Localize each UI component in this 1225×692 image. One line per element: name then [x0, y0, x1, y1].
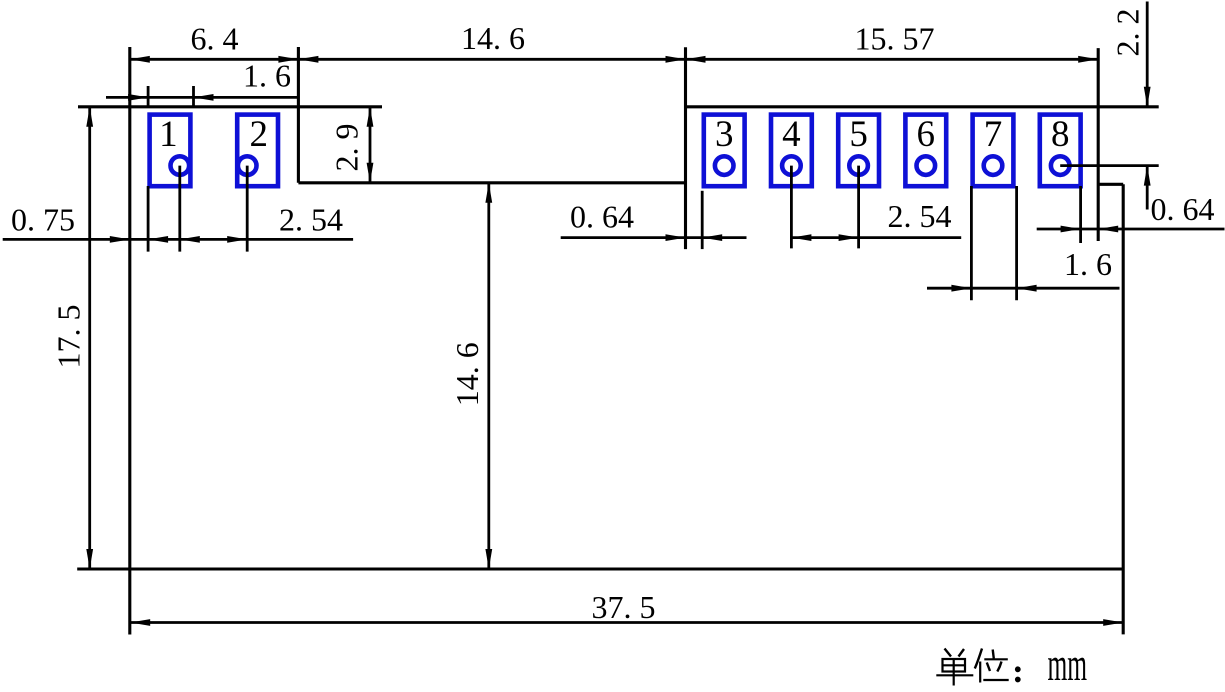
svg-text:2.54: 2.54: [888, 198, 952, 234]
svg-text:0.64: 0.64: [1151, 191, 1215, 227]
svg-text:3: 3: [715, 114, 734, 155]
svg-text:5: 5: [849, 114, 868, 155]
svg-text:8: 8: [1051, 114, 1070, 155]
svg-text:2: 2: [250, 114, 269, 155]
svg-text:6: 6: [917, 114, 936, 155]
svg-text:14.6: 14.6: [449, 342, 485, 406]
svg-text:37.5: 37.5: [592, 589, 656, 625]
svg-text:7: 7: [984, 114, 1003, 155]
svg-text:2.54: 2.54: [279, 202, 343, 238]
svg-text:4: 4: [782, 114, 801, 155]
svg-text:17.5: 17.5: [50, 305, 86, 369]
svg-text:1: 1: [159, 114, 178, 155]
svg-text:14.6: 14.6: [461, 20, 525, 56]
svg-text:0.64: 0.64: [570, 199, 634, 235]
svg-text:mm: mm: [1048, 639, 1088, 691]
svg-text:0.75: 0.75: [11, 202, 75, 238]
